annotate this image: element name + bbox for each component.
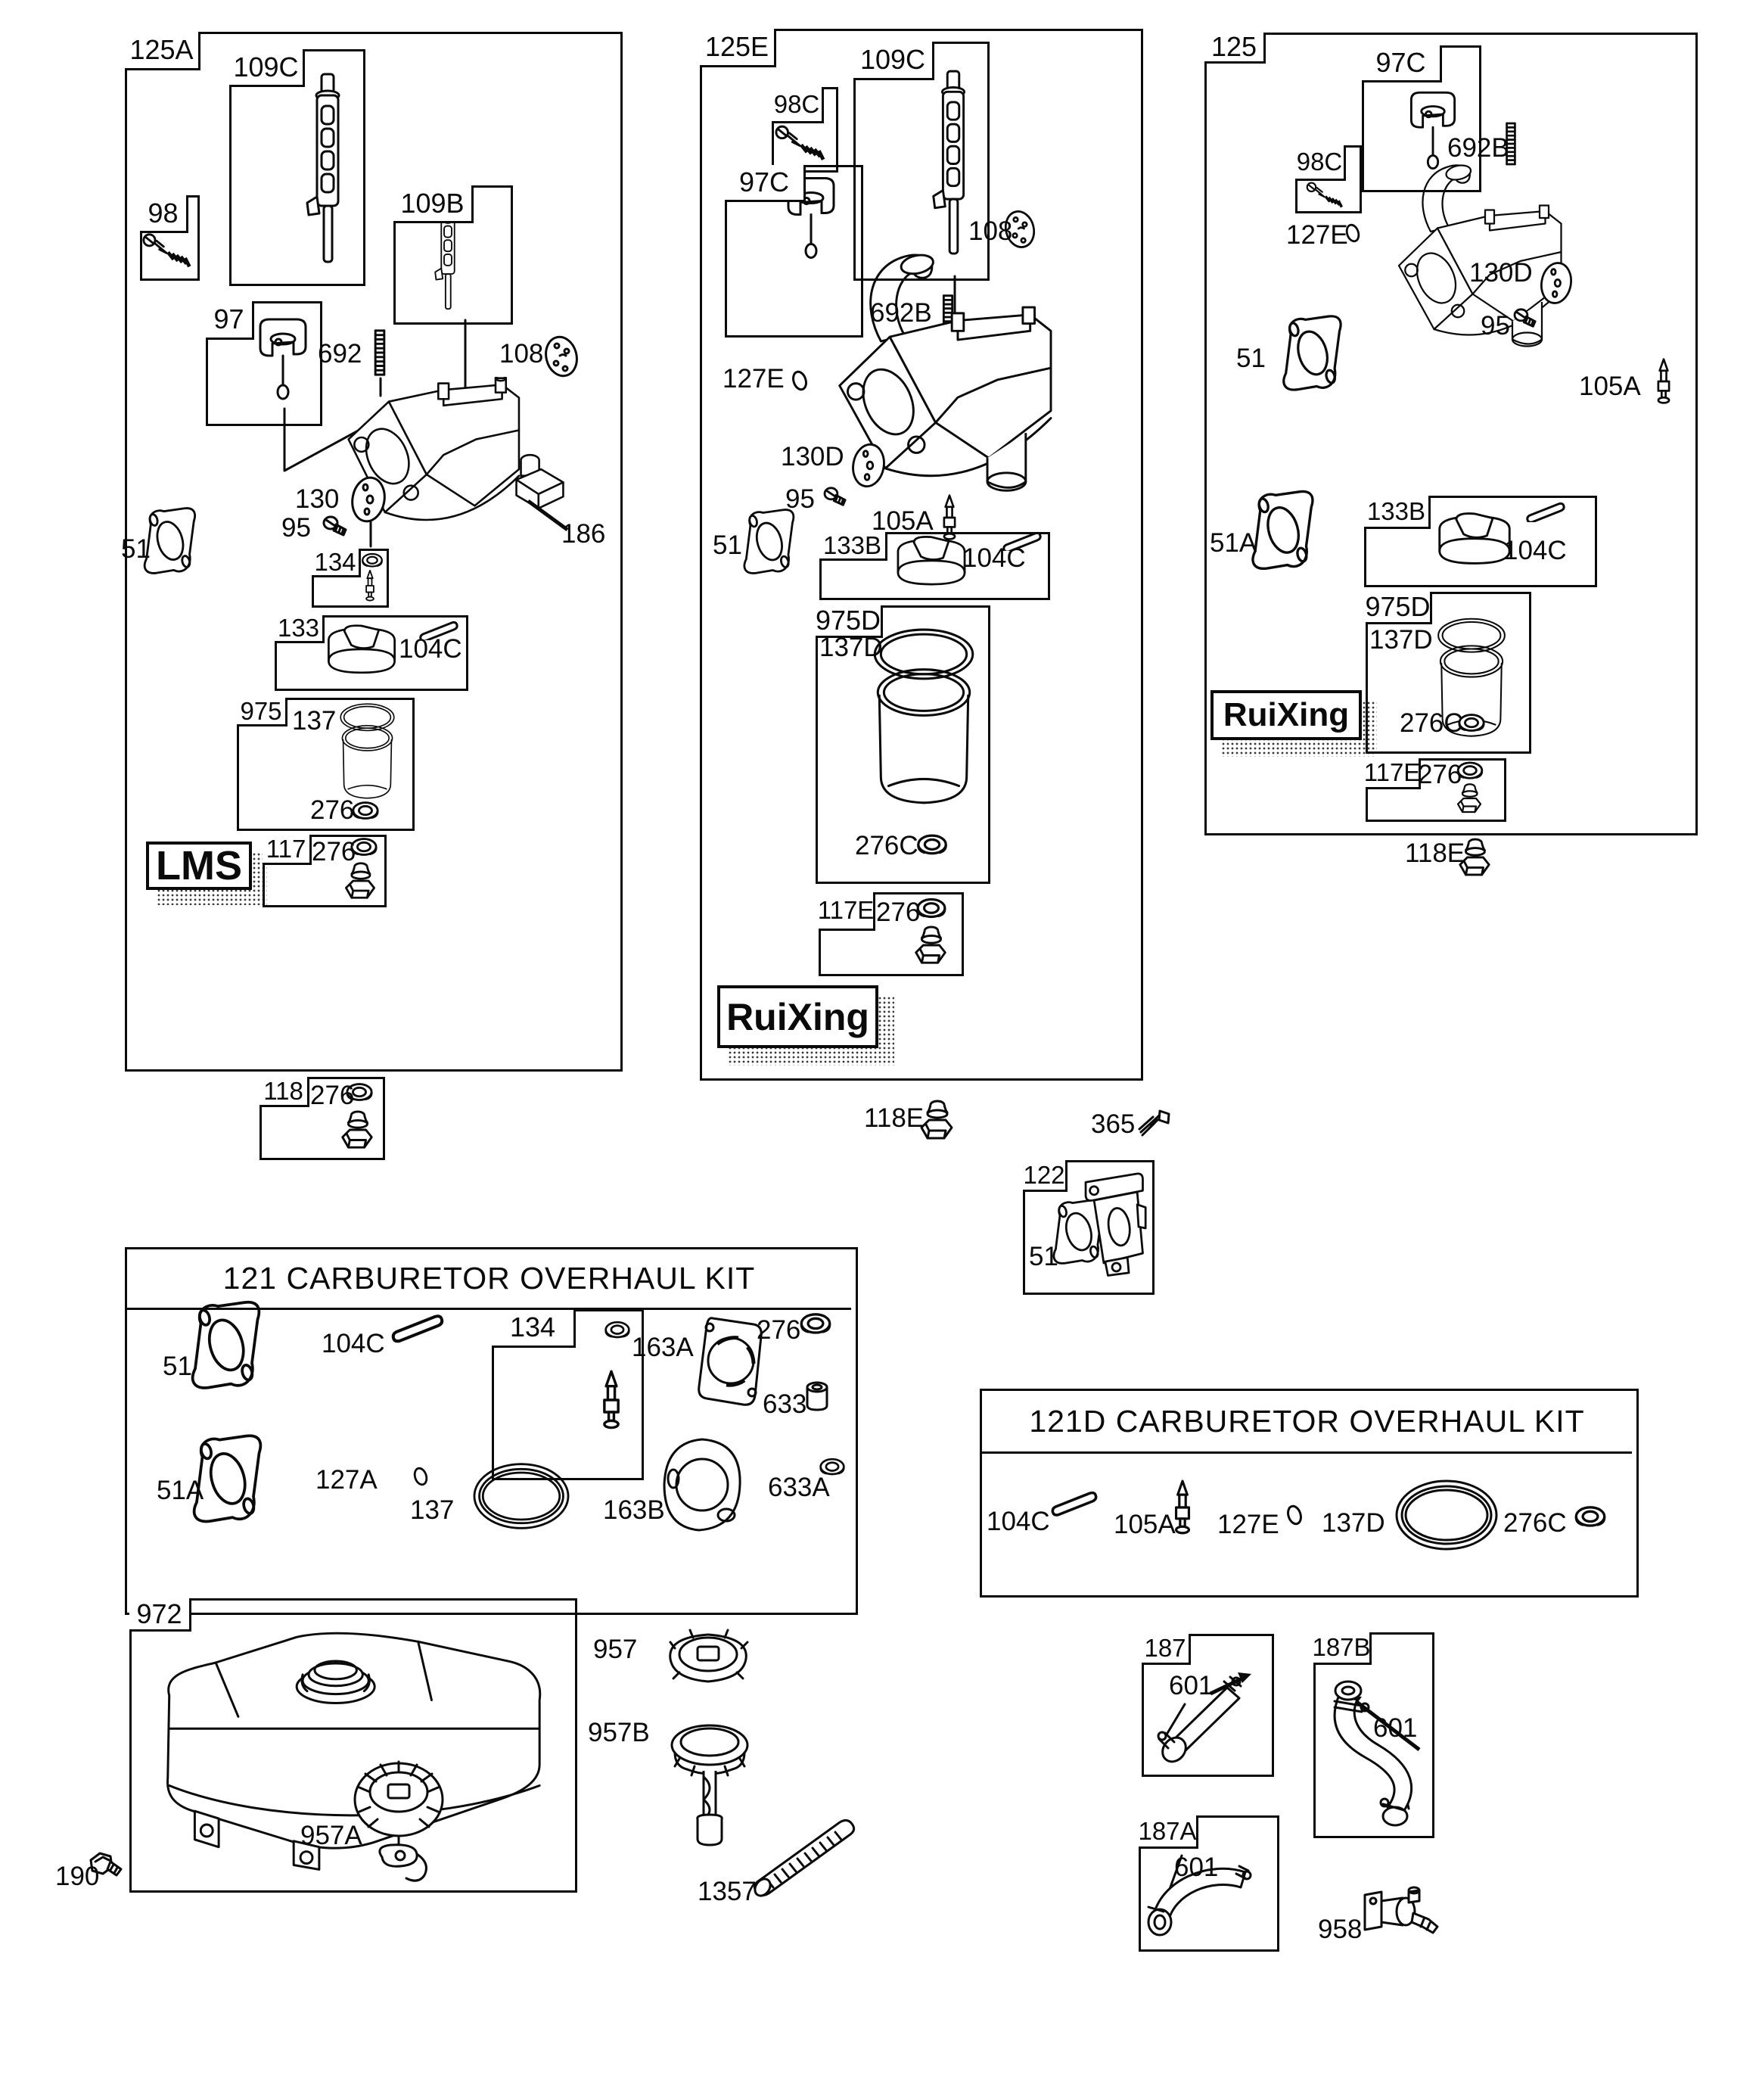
part-label-276: 276 [310,795,354,826]
lms-logo: LMS [146,842,252,890]
part-label-957B: 957B [588,1718,650,1748]
ruixing-logo-r: RuiXing [1210,690,1362,740]
part-label-276: 276 [876,898,920,928]
part-label-601: 601 [1174,1853,1218,1883]
tag-118: 118 [259,1077,309,1107]
group-tag-125A: 125A [125,32,200,70]
part-label-276: 276 [1418,760,1462,790]
group-tag-125: 125 [1204,33,1266,64]
part-label-105A: 105A [1579,372,1641,402]
part-label-51: 51 [1029,1242,1058,1272]
tag-187A: 187A [1139,1815,1198,1849]
tag-97C-r: 97C [1362,45,1442,82]
part-label-163B: 163B [603,1495,665,1526]
part-label-190: 190 [55,1862,99,1892]
tag-109C: 109C [229,49,305,87]
part-label-104C: 104C [399,634,462,664]
tag-133B-r: 133B [1364,496,1431,529]
part-label-276C: 276C [1503,1508,1567,1538]
tag-133: 133 [275,615,325,643]
tag-972: 972 [129,1598,191,1632]
parts-diagram-page: 125A 109C 98 109B 97 134 133 975 LMS 117… [0,0,1759,2100]
part-label-276C: 276C [1400,708,1463,739]
part-label-692: 692 [318,339,362,369]
part-label-137: 137 [292,706,336,736]
part-label-957A: 957A [300,1821,362,1851]
tag-109C-e: 109C [853,42,934,80]
part-label-51: 51 [121,534,151,565]
part-label-186: 186 [561,519,605,549]
part-label-130D: 130D [1469,258,1533,288]
kit-121-title: 121 CARBURETOR OVERHAUL KIT [127,1249,851,1310]
part-label-601: 601 [1169,1671,1213,1701]
part-label-130: 130 [295,484,339,515]
ruixing-logo-e: RuiXing [717,985,878,1048]
threaded-stud-1357-icon [752,1820,854,1899]
fuel-cap-957-icon [670,1630,747,1682]
part-label-51: 51 [1236,344,1266,374]
part-label-105A: 105A [1114,1510,1176,1540]
tag-187: 187 [1142,1634,1191,1665]
group-tag-125E: 125E [700,29,776,67]
screw-365-icon [1139,1111,1169,1135]
tag-97: 97 [206,301,254,340]
part-label-137D: 137D [819,633,883,663]
part-label-633A: 633A [768,1473,830,1503]
part-label-276: 276 [757,1315,800,1346]
part-label-95: 95 [281,513,311,543]
part-label-51A: 51A [1210,528,1257,558]
tag-134: 134 [312,549,361,577]
shutoff-valve-958-icon [1365,1887,1437,1933]
part-label-276C: 276C [855,831,918,861]
part-label-95: 95 [1481,311,1510,341]
tag-97C-e: 97C [725,165,806,202]
part-label-127E: 127E [723,364,785,394]
part-label-95: 95 [785,484,815,515]
part-label-108: 108 [499,339,543,369]
part-label-137D: 137D [1322,1508,1385,1538]
kit-121D-title: 121D CARBURETOR OVERHAUL KIT [982,1391,1632,1454]
fuel-cap-957B-icon [672,1725,747,1845]
tag-187B: 187B [1313,1632,1372,1665]
part-label-276: 276 [310,1081,354,1111]
tag-117E-r: 117E [1366,758,1421,789]
part-label-276: 276 [312,837,356,867]
tag-98: 98 [140,195,188,233]
part-label-105A: 105A [872,506,934,537]
tag-109B: 109B [393,185,474,223]
part-label-104C: 104C [1503,536,1567,566]
tag-98C-e: 98C [772,87,824,123]
part-label-104C: 104C [322,1329,385,1359]
tag-98C-r: 98C [1295,145,1346,181]
part-label-118E: 118E [1405,838,1465,869]
part-label-127E: 127E [1286,220,1348,250]
part-label-1357: 1357 [698,1877,757,1907]
part-label-692B: 692B [1447,133,1509,163]
part-label-957: 957 [593,1635,637,1665]
part-label-51A: 51A [157,1476,204,1506]
part-label-51: 51 [713,530,742,561]
part-label-137: 137 [410,1495,454,1526]
part-label-958: 958 [1318,1915,1362,1945]
part-label-104C: 104C [962,543,1026,574]
part-label-108: 108 [968,216,1012,247]
tag-975D-r: 975D [1366,592,1432,624]
tag-kit-134: 134 [492,1309,576,1348]
part-label-127E: 127E [1217,1510,1279,1540]
part-label-692B: 692B [870,298,932,328]
part-label-633: 633 [763,1389,806,1420]
part-label-130D: 130D [781,442,844,472]
bowl-bolt-118E-icon [921,1101,952,1138]
part-label-365: 365 [1091,1109,1135,1140]
part-label-104C: 104C [987,1507,1050,1537]
part-label-137D: 137D [1369,625,1433,655]
tag-975: 975 [237,698,287,726]
part-label-51: 51 [163,1352,192,1382]
tag-117E-e: 117E [819,892,875,931]
part-label-118E: 118E [864,1103,924,1134]
part-label-163A: 163A [632,1333,694,1363]
part-label-601: 601 [1373,1713,1417,1744]
tag-122: 122 [1023,1160,1068,1192]
tag-117: 117 [263,835,312,865]
part-label-127A: 127A [315,1465,378,1495]
